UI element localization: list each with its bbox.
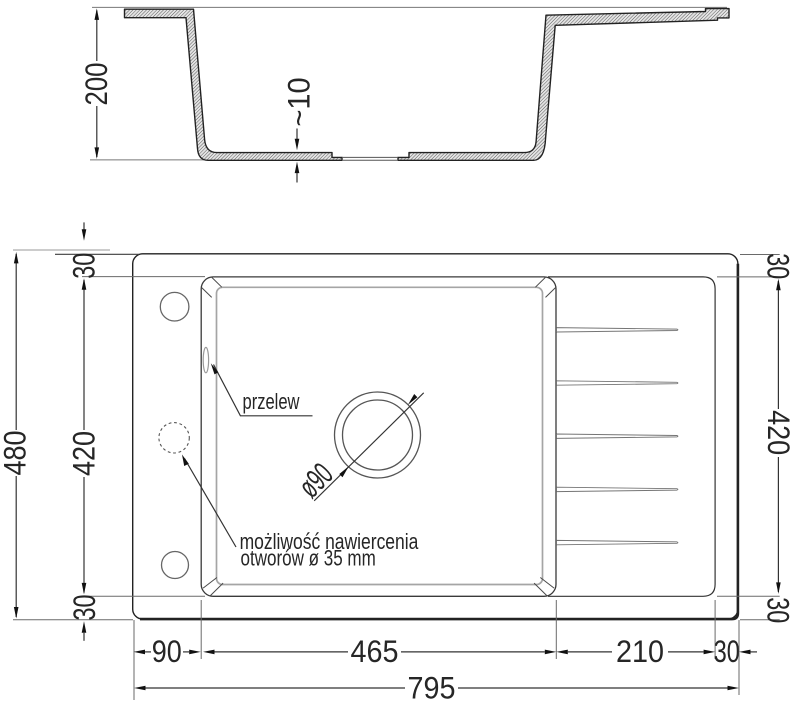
svg-text:przelew: przelew (243, 390, 300, 414)
svg-text:30: 30 (68, 595, 103, 621)
svg-text:90: 90 (152, 635, 182, 670)
svg-text:420: 420 (760, 410, 795, 455)
svg-text:480: 480 (0, 430, 33, 475)
svg-text:30: 30 (67, 253, 102, 279)
svg-text:30: 30 (760, 597, 795, 623)
svg-text:30: 30 (714, 635, 740, 670)
svg-text:otworów ø 35 mm: otworów ø 35 mm (241, 547, 376, 571)
svg-text:210: 210 (616, 635, 664, 670)
svg-text:200: 200 (80, 63, 115, 106)
svg-text:420: 420 (67, 431, 102, 476)
svg-text:~10: ~10 (282, 77, 317, 126)
svg-text:30: 30 (760, 253, 795, 279)
svg-text:465: 465 (351, 635, 399, 670)
svg-text:795: 795 (408, 671, 456, 706)
